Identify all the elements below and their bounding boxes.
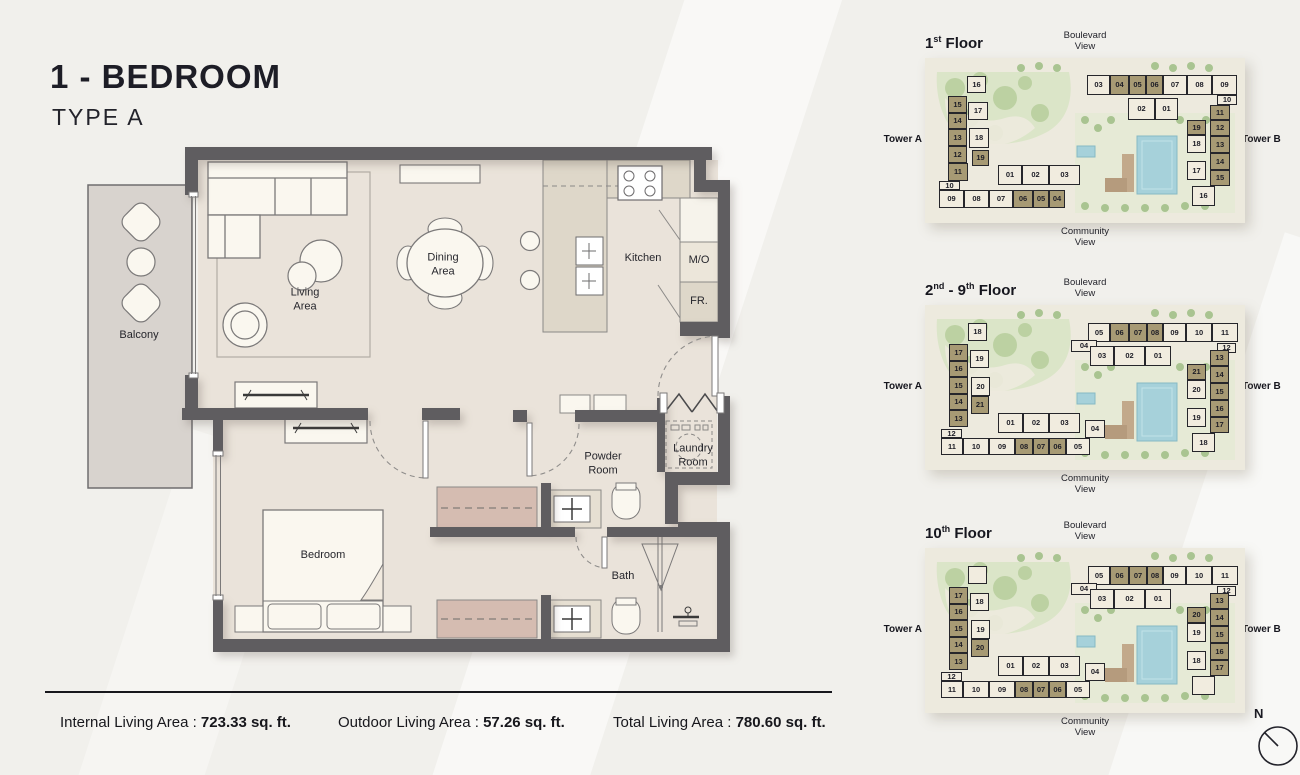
title-part: nd	[933, 281, 944, 291]
title-part: Floor	[941, 35, 983, 52]
unit-cell-b06: 06	[1110, 323, 1129, 342]
unit-cell-b07: 07	[1129, 566, 1147, 585]
stat-value: 723.33 sq. ft.	[201, 714, 291, 731]
unit-cell-b13: 13	[1210, 593, 1229, 609]
unit-cell-a05: 05	[1066, 438, 1090, 455]
unit-cell-b15: 15	[1210, 626, 1229, 643]
unit-cell-a03: 03	[1049, 165, 1080, 185]
title-part: Floor	[975, 282, 1017, 299]
unit-cell	[1192, 676, 1215, 695]
balcony-table-icon	[127, 248, 155, 276]
unit-cell-b17: 17	[1210, 417, 1229, 433]
site-map: 1617181915141312111009080706050401020303…	[925, 58, 1245, 223]
sideboard-icon	[400, 165, 480, 183]
key-plan-floor-1: 1st Floor Boulevard View Tower A Tower B…	[880, 28, 1300, 276]
community-view-label: Community View	[1030, 716, 1140, 739]
unit-cell-b19: 19	[1187, 120, 1206, 135]
tower-a-label: Tower A	[880, 381, 922, 392]
living-area-stats: Internal Living Area : 723.33 sq. ft. Ou…	[45, 688, 845, 758]
unit-cell-b02: 02	[1114, 589, 1145, 609]
unit-cell-a08: 08	[1015, 438, 1033, 455]
unit-cell-a12: 12	[948, 146, 967, 163]
unit-cell-a06: 06	[1013, 190, 1033, 208]
unit-cell-b15: 15	[1210, 383, 1229, 400]
room-label-fridge: FR.	[690, 295, 708, 309]
room-label-laundry-room: Laundry Room	[673, 442, 713, 470]
unit-cell-a09: 09	[989, 681, 1015, 698]
site-map: 1718161519142013121110090807060504010203…	[925, 548, 1245, 713]
unit-cell-a04: 04	[1085, 663, 1105, 681]
stat-value: 57.26 sq. ft.	[483, 714, 565, 731]
unit-cell-a11: 11	[948, 163, 968, 181]
tower-a-label: Tower A	[880, 624, 922, 635]
title-part: th	[942, 524, 951, 534]
unit-cell-a18: 18	[968, 323, 987, 341]
unit-cell-b19: 19	[1187, 408, 1206, 427]
brochure-page: 1 - BEDROOM TYPE A	[0, 0, 1300, 775]
floor-plan: BalconyLiving AreaDining AreaKitchenM/OF…	[45, 140, 845, 700]
room-label-bedroom: Bedroom	[301, 549, 346, 563]
unit-cell-b10: 10	[1186, 323, 1212, 342]
unit-cell-b01: 01	[1145, 346, 1171, 366]
unit-cell-b18: 18	[1187, 135, 1206, 153]
unit-cell-a17: 17	[949, 344, 968, 361]
armchair-icon	[223, 303, 267, 347]
title-part: th	[966, 281, 975, 291]
unit-cell-b20: 20	[1187, 607, 1206, 623]
internal-living-area: Internal Living Area : 723.33 sq. ft.	[60, 714, 291, 731]
unit-cell-b20: 20	[1187, 380, 1206, 399]
unit-cell-b03: 03	[1090, 589, 1114, 609]
tv-console-living	[235, 382, 317, 408]
stove-icon	[618, 166, 662, 200]
unit-cell-a14: 14	[948, 113, 967, 129]
unit-cell-a09: 09	[939, 190, 964, 208]
unit-cell-a17: 17	[949, 587, 968, 604]
room-label-powder-room: Powder Room	[584, 450, 621, 478]
unit-cell-b13: 13	[1210, 350, 1229, 366]
north-label: N	[1254, 706, 1263, 721]
unit-cell-a11: 11	[941, 438, 963, 455]
community-view-label: Community View	[1030, 226, 1140, 249]
unit-cell-b03: 03	[1090, 346, 1114, 366]
boulevard-view-label: Boulevard View	[1030, 520, 1140, 543]
unit-cell-a06: 06	[1049, 681, 1066, 698]
key-plan-floor-10: 10th Floor Boulevard View Tower A Tower …	[880, 518, 1300, 766]
unit-cell-b08: 08	[1147, 323, 1163, 342]
unit-cell-a15: 15	[949, 377, 968, 394]
tower-b-label: Tower B	[1242, 381, 1298, 392]
key-plan-title: 1st Floor	[925, 34, 983, 52]
unit-cell-b11: 11	[1210, 105, 1230, 120]
unit-cell-a01: 01	[998, 165, 1022, 185]
unit-cell-b02: 02	[1128, 98, 1155, 120]
unit-cell-b18: 18	[1192, 433, 1215, 452]
unit-cell-a13: 13	[949, 653, 968, 670]
room-label-kitchen: Kitchen	[625, 252, 662, 266]
unit-cell-b19: 19	[1187, 623, 1206, 642]
unit-cell-a20: 20	[971, 639, 989, 657]
unit-cell-b08: 08	[1187, 75, 1212, 95]
room-label-living-area: Living Area	[291, 286, 320, 314]
room-label-dining-area: Dining Area	[427, 251, 458, 279]
unit-cell-a14: 14	[949, 637, 968, 653]
room-label-microwave-oven: M/O	[689, 254, 710, 268]
unit-cell-a07: 07	[989, 190, 1013, 208]
unit-cell-a11: 11	[941, 681, 963, 698]
stat-label: Internal Living Area :	[60, 714, 201, 731]
unit-cell-b09: 09	[1163, 566, 1186, 585]
unit-cell-b11: 11	[1212, 566, 1238, 585]
bed-icon	[263, 510, 383, 632]
stat-label: Outdoor Living Area :	[338, 714, 483, 731]
unit-cell-a10: 10	[939, 181, 960, 190]
unit-cell-b01: 01	[1145, 589, 1171, 609]
unit-cell-a08: 08	[1015, 681, 1033, 698]
unit-cell-b09: 09	[1212, 75, 1237, 95]
unit-cell-a03: 03	[1049, 413, 1080, 433]
unit-cell-a16: 16	[967, 76, 986, 93]
unit-cell-a19: 19	[970, 350, 989, 368]
unit-cell-a15: 15	[949, 620, 968, 637]
unit-cell-a12: 12	[941, 429, 962, 438]
unit-cell-a20: 20	[971, 377, 990, 396]
unit-cell-a06: 06	[1049, 438, 1066, 455]
page-title: 1 - BEDROOM	[50, 58, 281, 96]
unit-cell-a05: 05	[1033, 190, 1049, 208]
unit-cell-b02: 02	[1114, 346, 1145, 366]
unit-cell-b08: 08	[1147, 566, 1163, 585]
unit-cell-b16: 16	[1192, 186, 1215, 206]
unit-cell-b14: 14	[1210, 609, 1229, 626]
key-plan-title: 2nd - 9th Floor	[925, 281, 1016, 299]
compass-icon	[1256, 724, 1300, 770]
boulevard-view-label: Boulevard View	[1030, 30, 1140, 53]
unit-cell	[968, 566, 987, 584]
unit-cell-a10: 10	[963, 438, 989, 455]
unit-cell-a13: 13	[949, 410, 968, 427]
stats-divider	[45, 691, 832, 693]
unit-cell-b17: 17	[1187, 161, 1206, 180]
unit-cell-a12: 12	[941, 672, 962, 681]
title-part: 10	[925, 525, 942, 542]
unit-cell-b16: 16	[1210, 400, 1229, 417]
site-map: 1817191615201421131211100908070605040102…	[925, 305, 1245, 470]
tower-a-label: Tower A	[880, 134, 922, 145]
unit-cell-a18: 18	[970, 593, 989, 611]
nightstand-icon	[383, 606, 411, 632]
stat-label: Total Living Area :	[613, 714, 736, 731]
tower-b-label: Tower B	[1242, 624, 1298, 635]
unit-cell-b04: 04	[1110, 75, 1129, 95]
unit-cell-b21: 21	[1187, 364, 1206, 380]
key-plan-floor-2-9: 2nd - 9th Floor Boulevard View Tower A T…	[880, 275, 1300, 523]
north-compass: N	[1248, 700, 1300, 772]
unit-cell-a16: 16	[949, 361, 968, 377]
unit-cell-a10: 10	[963, 681, 989, 698]
community-view-label: Community View	[1030, 473, 1140, 496]
unit-cell-a08: 08	[964, 190, 989, 208]
unit-cell-b13: 13	[1210, 136, 1230, 153]
unit-cell-a09: 09	[989, 438, 1015, 455]
outdoor-living-area: Outdoor Living Area : 57.26 sq. ft.	[338, 714, 565, 731]
unit-cell-a07: 07	[1033, 681, 1049, 698]
unit-cell-a01: 01	[998, 656, 1023, 676]
unit-cell-b14: 14	[1210, 366, 1229, 383]
unit-cell-a01: 01	[998, 413, 1023, 433]
unit-cell-a05: 05	[1066, 681, 1090, 698]
unit-cell-a19: 19	[971, 620, 990, 639]
unit-cell-a18: 18	[969, 128, 989, 148]
unit-cell-a16: 16	[949, 604, 968, 620]
unit-cell-b18: 18	[1187, 651, 1206, 670]
unit-cell-b01: 01	[1155, 98, 1178, 120]
unit-cell-a04: 04	[1049, 190, 1065, 208]
unit-cell-a02: 02	[1023, 413, 1049, 433]
unit-cell-b17: 17	[1210, 660, 1229, 676]
unit-cell-a17: 17	[968, 102, 988, 120]
unit-cell-b07: 07	[1163, 75, 1187, 95]
boulevard-view-label: Boulevard View	[1030, 277, 1140, 300]
unit-cell-b10: 10	[1186, 566, 1212, 585]
unit-cell-a21: 21	[971, 396, 989, 414]
unit-cell-b03: 03	[1087, 75, 1110, 95]
unit-cell-b14: 14	[1210, 153, 1230, 170]
unit-cell-b07: 07	[1129, 323, 1147, 342]
page-subtitle: TYPE A	[52, 104, 145, 131]
unit-cell-b16: 16	[1210, 643, 1229, 660]
unit-cell-b12: 12	[1210, 120, 1230, 136]
floor-plan-drawing	[45, 140, 845, 700]
unit-cell-b05: 05	[1129, 75, 1146, 95]
stat-value: 780.60 sq. ft.	[736, 714, 826, 731]
unit-cell-a19: 19	[972, 150, 989, 166]
title-part: Floor	[950, 525, 992, 542]
room-label-bath: Bath	[612, 570, 635, 584]
unit-cell-b11: 11	[1212, 323, 1238, 342]
unit-cell-b09: 09	[1163, 323, 1186, 342]
unit-cell-a02: 02	[1023, 656, 1049, 676]
title-part: - 9	[944, 282, 966, 299]
unit-cell-b10: 10	[1217, 95, 1237, 105]
total-living-area: Total Living Area : 780.60 sq. ft.	[613, 714, 826, 731]
room-label-balcony: Balcony	[119, 329, 158, 343]
unit-cell-a15: 15	[948, 96, 967, 113]
unit-cell-a13: 13	[948, 129, 967, 146]
tower-b-label: Tower B	[1242, 134, 1298, 145]
unit-cell-b06: 06	[1146, 75, 1163, 95]
unit-cell-a02: 02	[1022, 165, 1049, 185]
key-plan-title: 10th Floor	[925, 524, 992, 542]
nightstand-icon	[235, 606, 263, 632]
unit-cell-a07: 07	[1033, 438, 1049, 455]
unit-cell-a14: 14	[949, 394, 968, 410]
unit-cell-a03: 03	[1049, 656, 1080, 676]
unit-cell-a04: 04	[1085, 420, 1105, 438]
unit-cell-b06: 06	[1110, 566, 1129, 585]
unit-cell-b15: 15	[1210, 170, 1230, 186]
